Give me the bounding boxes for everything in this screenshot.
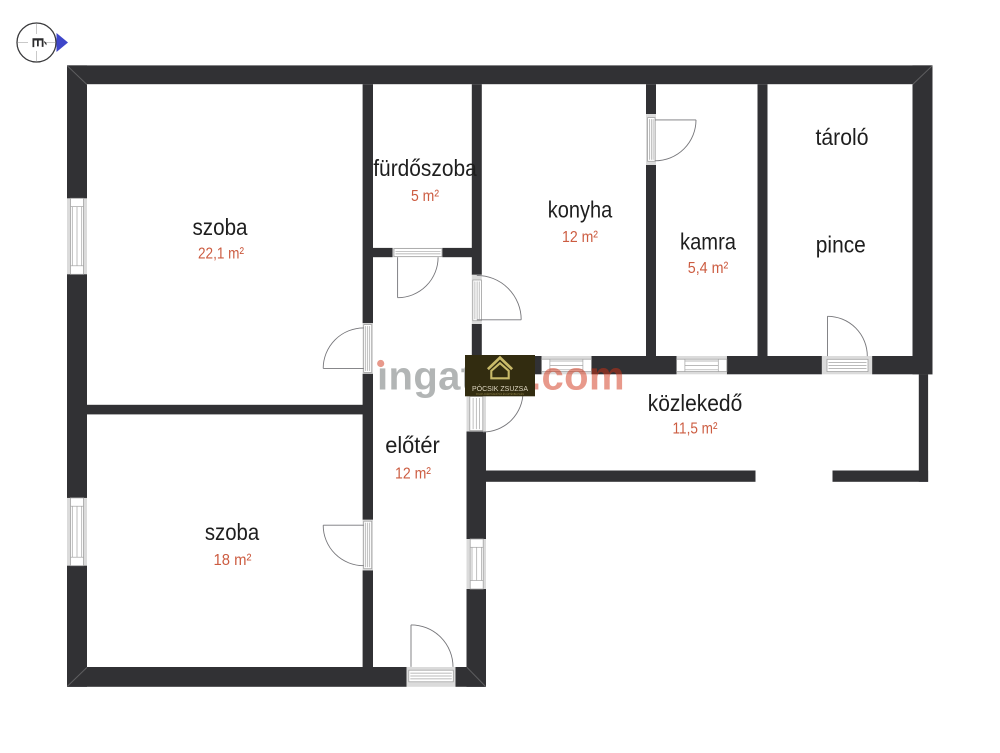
svg-text:11,5 m²: 11,5 m² (673, 421, 719, 438)
svg-text:22,1 m²: 22,1 m² (198, 246, 245, 263)
svg-text:szoba: szoba (193, 214, 248, 240)
svg-text:É: É (28, 37, 47, 48)
svg-text:kamra: kamra (680, 229, 736, 255)
svg-text:konyha: konyha (548, 197, 613, 223)
svg-text:pince: pince (816, 232, 866, 258)
svg-text:tároló: tároló (816, 124, 869, 150)
svg-text:.com: .com (530, 355, 625, 399)
svg-text:5,4 m²: 5,4 m² (688, 260, 729, 277)
svg-text:közlekedő: közlekedő (648, 390, 743, 416)
svg-text:12 m²: 12 m² (395, 466, 432, 483)
svg-text:18 m²: 18 m² (214, 552, 253, 569)
svg-text:előtér: előtér (385, 432, 440, 458)
svg-text:12 m²: 12 m² (562, 229, 599, 246)
svg-text:INGATLANÉRTÉKESÍTÉS ÉS ÉRTÉKBE: INGATLANÉRTÉKESÍTÉS ÉS ÉRTÉKBECSLÉS (476, 391, 524, 396)
svg-text:5 m²: 5 m² (411, 188, 440, 205)
svg-text:fürdőszoba: fürdőszoba (373, 155, 477, 181)
svg-text:szoba: szoba (205, 519, 259, 545)
